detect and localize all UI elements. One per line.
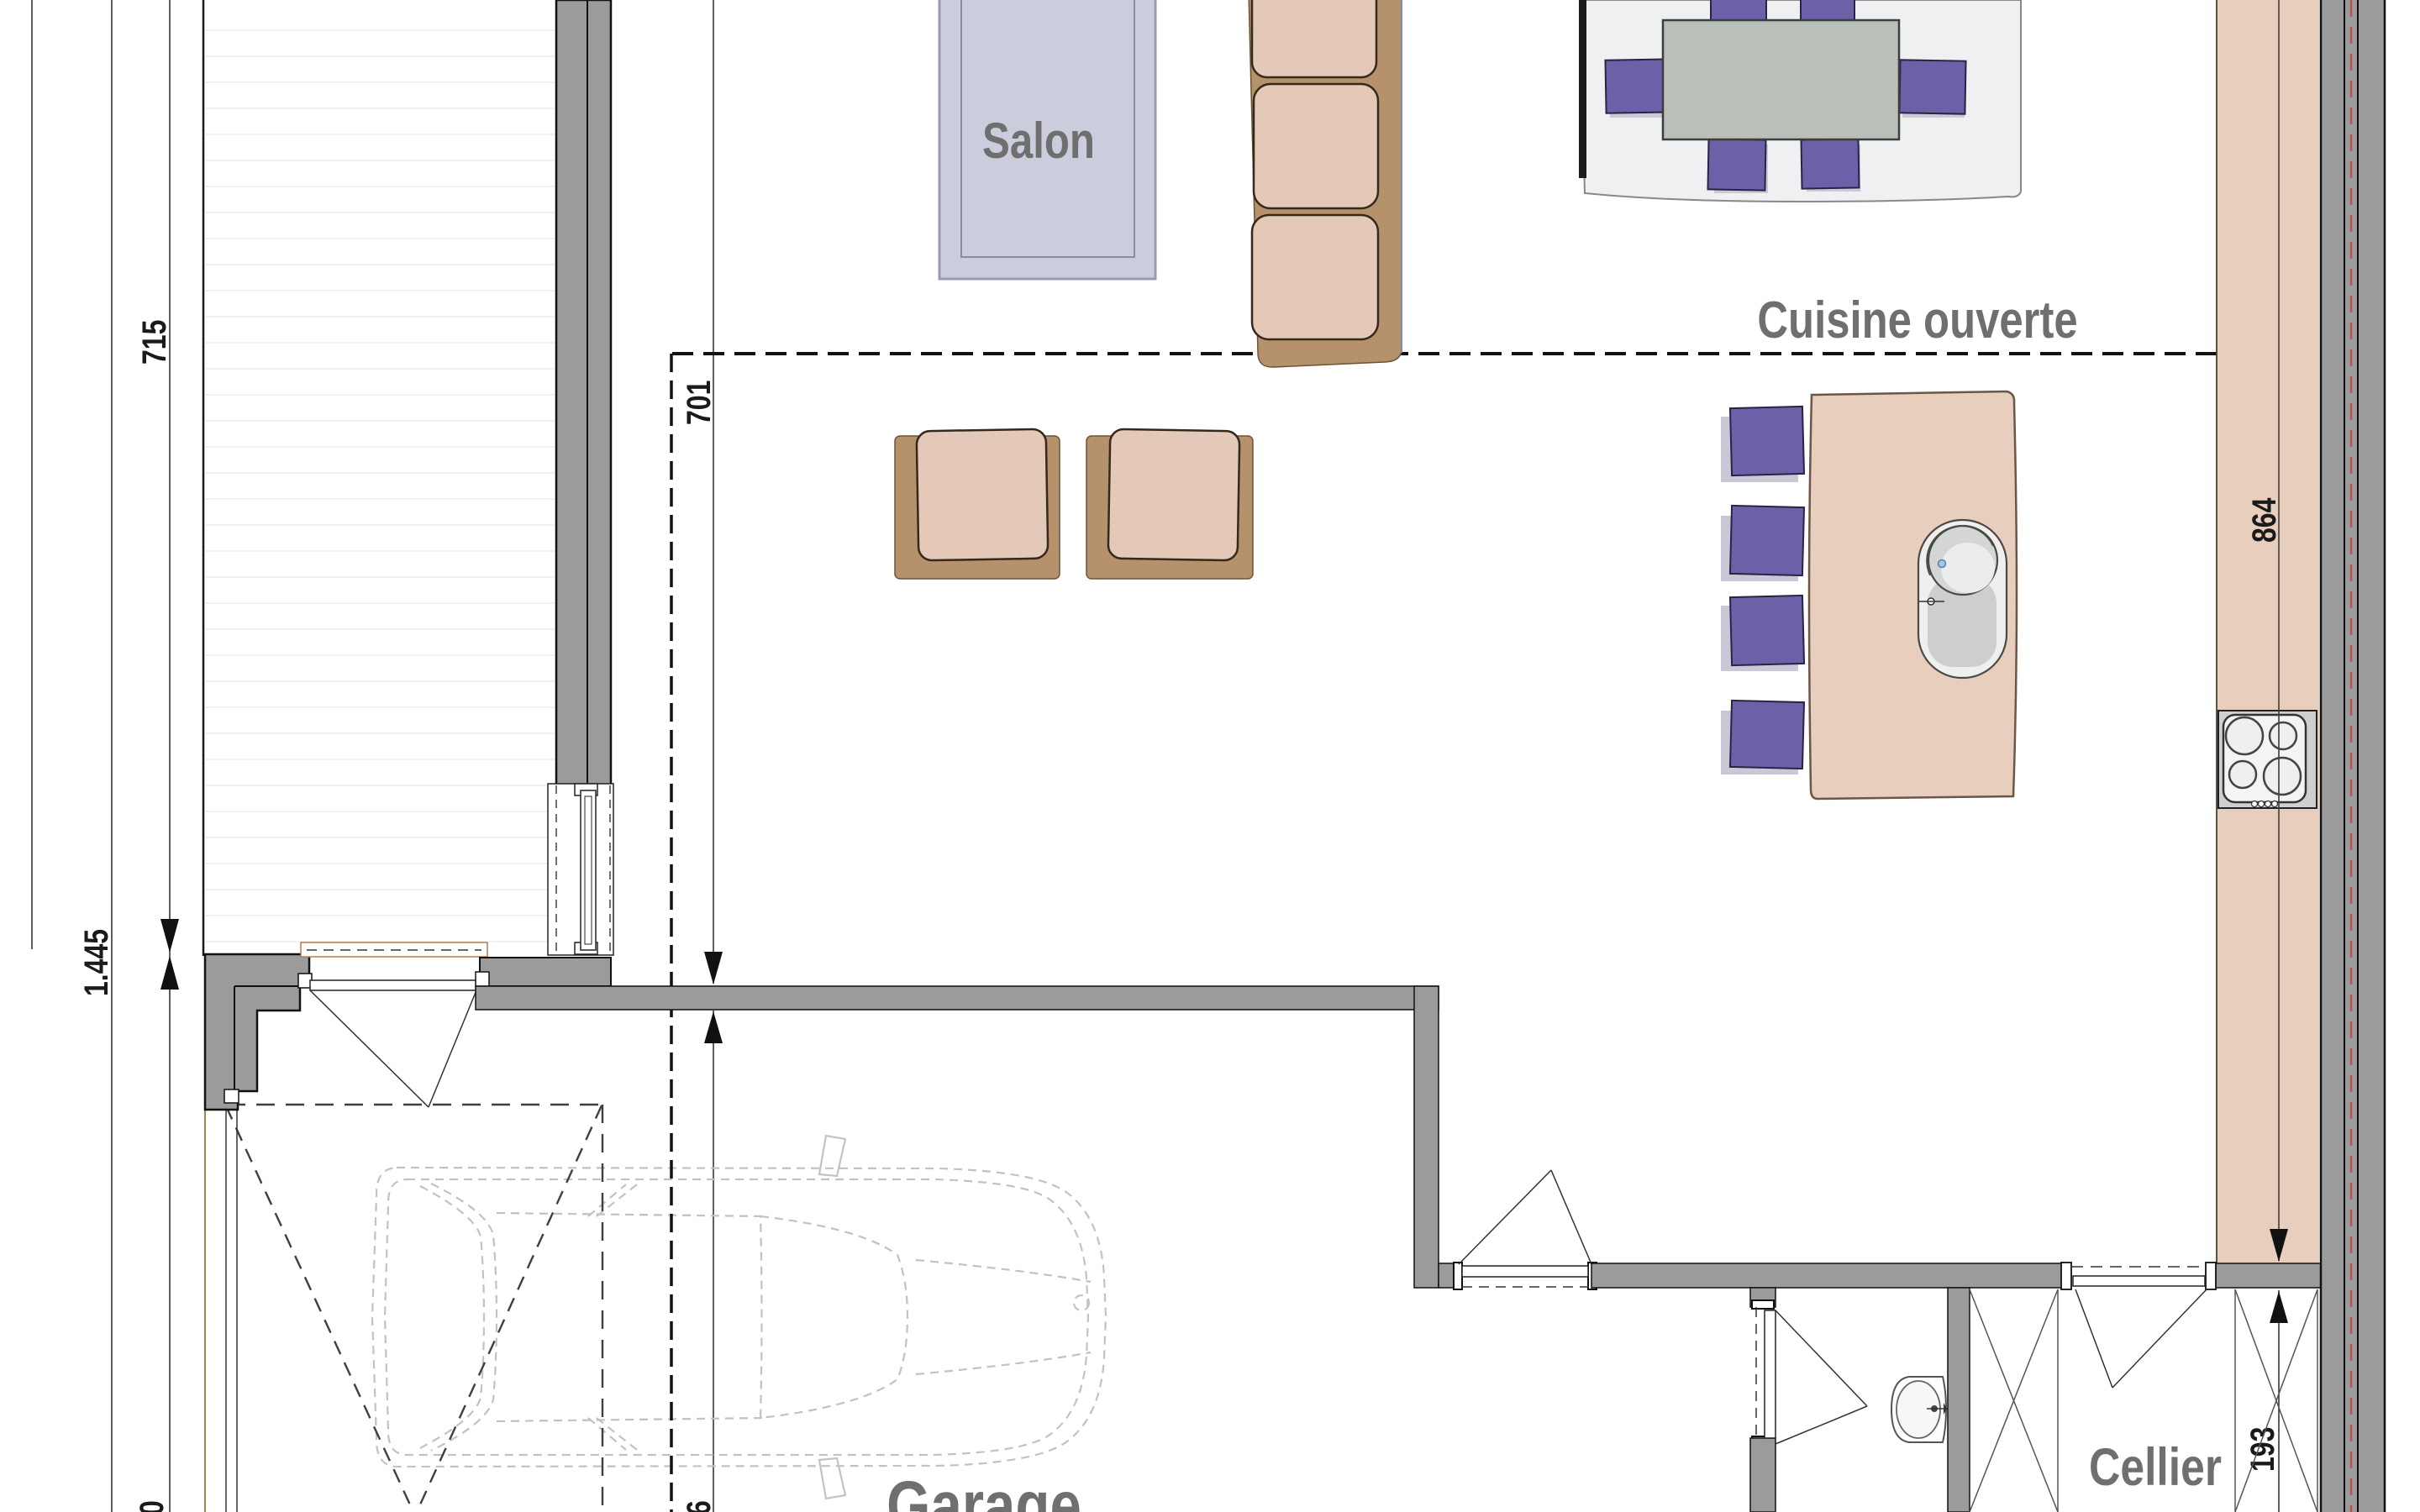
svg-text:Cellier: Cellier xyxy=(2089,1438,2222,1497)
svg-text:864: 864 xyxy=(2245,498,2283,543)
svg-text:193: 193 xyxy=(2244,1427,2281,1472)
svg-text:6: 6 xyxy=(680,1500,718,1512)
svg-text:715: 715 xyxy=(135,320,173,365)
svg-text:701: 701 xyxy=(680,381,718,425)
svg-text:Salon: Salon xyxy=(982,112,1095,169)
svg-text:Cuisine ouverte: Cuisine ouverte xyxy=(1757,291,2077,349)
svg-text:Garage: Garage xyxy=(886,1467,1081,1512)
svg-text:1.445: 1.445 xyxy=(77,929,115,996)
svg-text:0: 0 xyxy=(133,1500,171,1512)
